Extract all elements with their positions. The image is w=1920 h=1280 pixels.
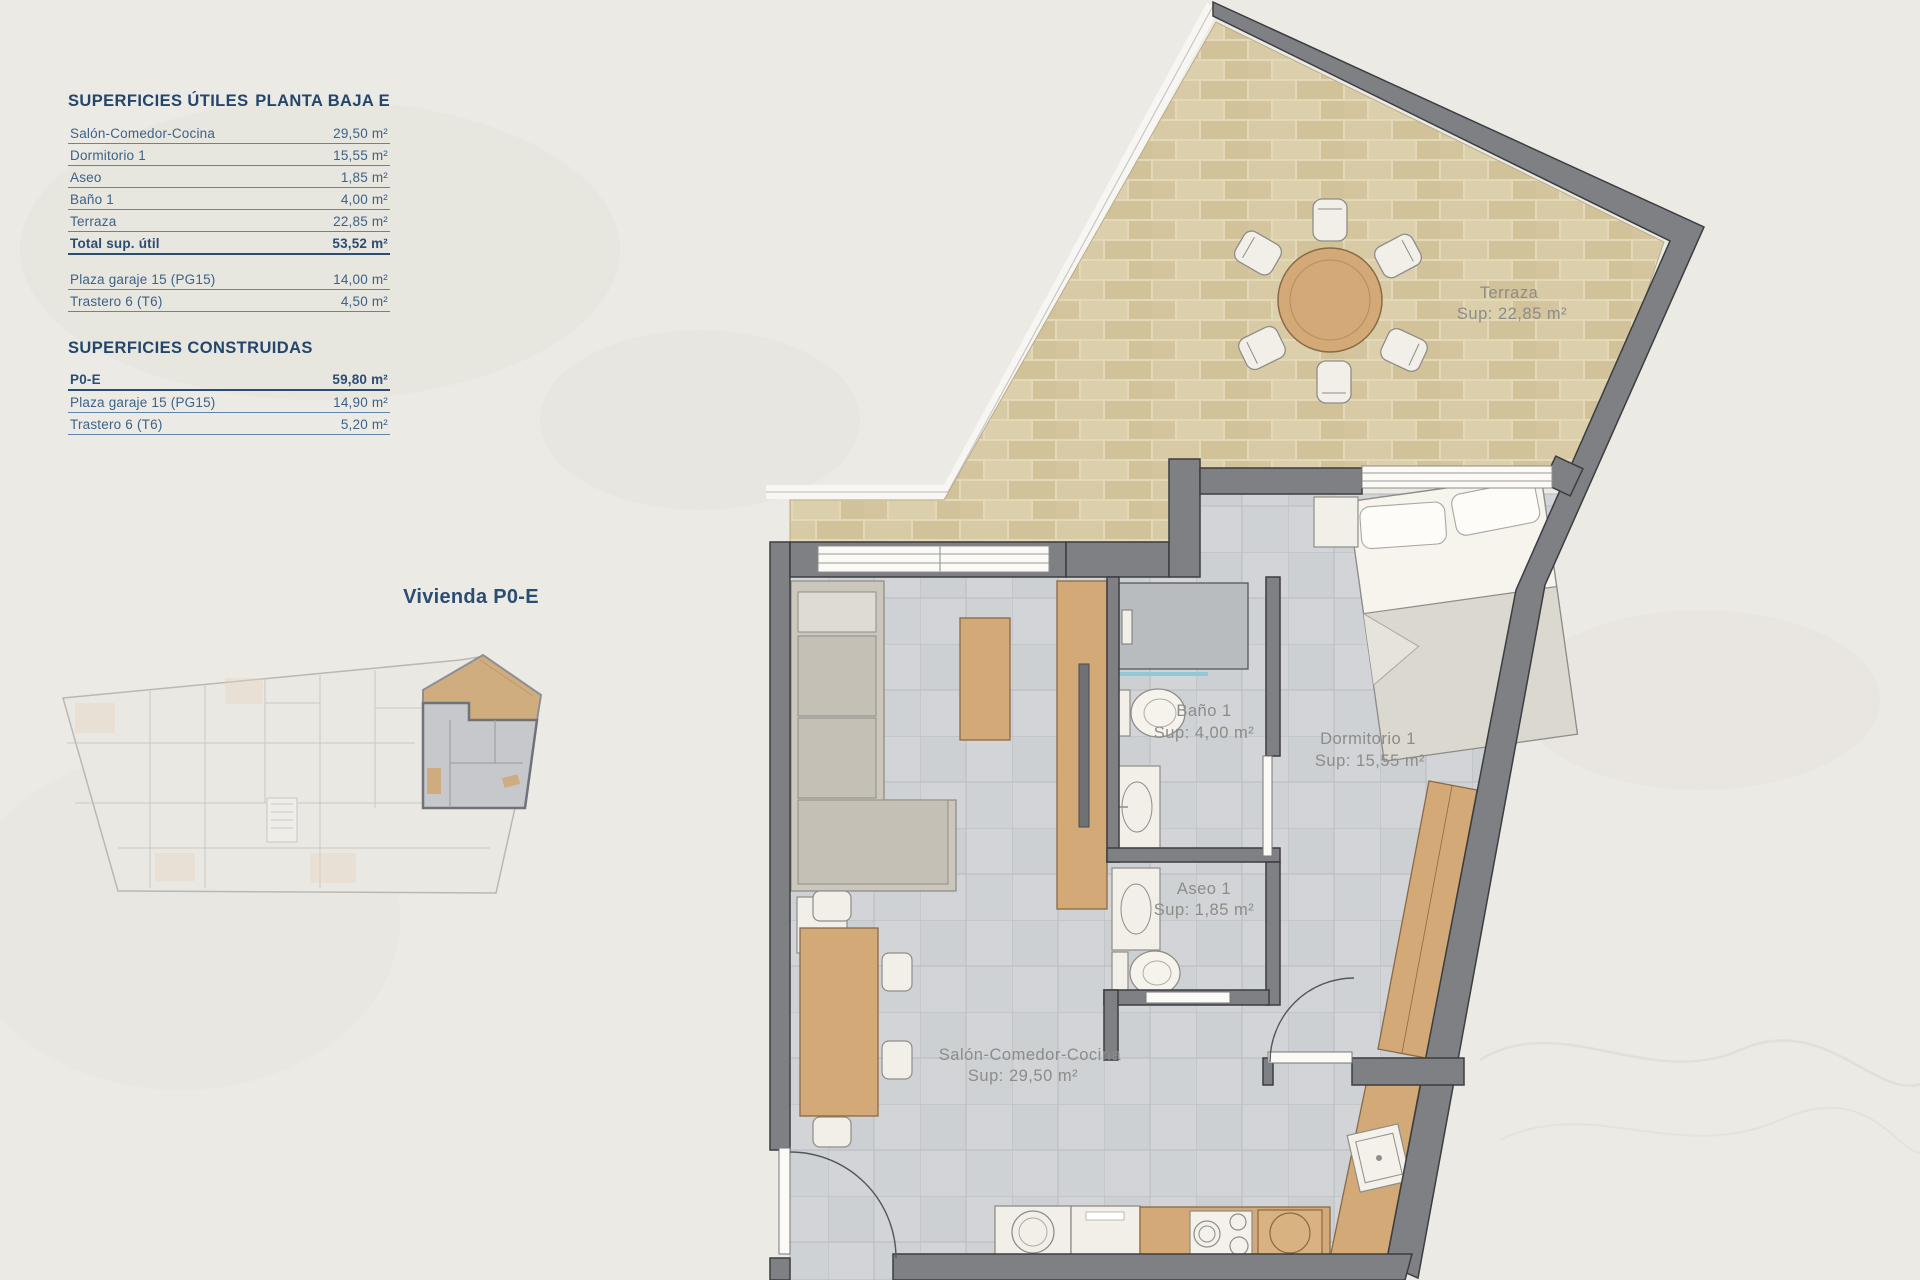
row-label: Salón-Comedor-Cocina <box>70 126 215 141</box>
dormitorio-area: Sup: 15,55 m² <box>1315 752 1425 770</box>
terrace-floor <box>790 22 1664 542</box>
bathroom-sink <box>1114 766 1160 848</box>
table-row: Trastero 6 (T6) 4,50 m² <box>68 290 390 312</box>
row-value: 53,52 m² <box>332 236 388 251</box>
aseo-sliding-door <box>1146 992 1230 1003</box>
terrace-round-table <box>1278 248 1382 352</box>
bottom-wall <box>893 1254 1412 1280</box>
unit-floor-plan: Terraza Sup: 22,85 m² Baño 1 Sup: 4,00 m… <box>766 2 1704 1280</box>
planta-title: PLANTA BAJA E <box>255 92 390 111</box>
areas-panel-header: SUPERFICIES ÚTILES PLANTA BAJA E <box>68 92 390 111</box>
table-row: Salón-Comedor-Cocina 29,50 m² <box>68 122 390 144</box>
row-label: Terraza <box>70 214 116 229</box>
building-overview-plan <box>63 655 541 893</box>
row-value: 14,00 m² <box>333 272 388 287</box>
row-value: 15,55 m² <box>333 148 388 163</box>
row-label: Plaza garaje 15 (PG15) <box>70 395 215 410</box>
row-label: Aseo <box>70 170 102 185</box>
aseo-label: Aseo 1 <box>1177 880 1231 898</box>
table-row: Plaza garaje 15 (PG15) 14,00 m² <box>68 268 390 290</box>
row-value: 29,50 m² <box>333 126 388 141</box>
table-row: Aseo 1,85 m² <box>68 166 390 188</box>
left-wall <box>770 542 790 1150</box>
row-label: Plaza garaje 15 (PG15) <box>70 272 215 287</box>
total-row: Total sup. útil 53,52 m² <box>68 232 390 255</box>
row-value: 5,20 m² <box>341 417 388 432</box>
row-label: P0-E <box>70 372 101 387</box>
table-row: Baño 1 4,00 m² <box>68 188 390 210</box>
table-row: P0-E 59,80 m² <box>68 368 390 391</box>
oven-unit <box>1258 1210 1322 1256</box>
bedroom-bottom-wall-right <box>1352 1058 1464 1085</box>
row-label: Trastero 6 (T6) <box>70 294 163 309</box>
center-wall-riser <box>1169 459 1200 577</box>
row-value: 4,50 m² <box>341 294 388 309</box>
row-value: 1,85 m² <box>341 170 388 185</box>
tv-screen <box>1079 664 1089 827</box>
living-window <box>818 546 1049 572</box>
row-label: Total sup. útil <box>70 236 160 251</box>
bathroom-left-wall <box>1107 577 1119 862</box>
aseo-area: Sup: 1,85 m² <box>1154 901 1254 919</box>
overview-caption: Vivienda P0-E <box>368 586 574 609</box>
bedroom-window <box>1362 466 1552 488</box>
row-value: 14,90 m² <box>333 395 388 410</box>
terraza-label: Terraza <box>1480 284 1539 302</box>
construidas-title: SUPERFICIES CONSTRUIDAS <box>68 339 390 358</box>
bed <box>1348 475 1578 762</box>
row-label: Trastero 6 (T6) <box>70 417 163 432</box>
row-label: Dormitorio 1 <box>70 148 146 163</box>
nightstand <box>1314 497 1358 547</box>
salon-area: Sup: 29,50 m² <box>968 1067 1078 1085</box>
bedroom-top-wall <box>1200 468 1362 494</box>
table-row: Trastero 6 (T6) 5,20 m² <box>68 413 390 435</box>
washing-machine <box>995 1206 1071 1258</box>
bathroom-sliding-door <box>1263 756 1272 856</box>
utiles-title: SUPERFICIES ÚTILES <box>68 92 248 111</box>
table-row: Dormitorio 1 15,55 m² <box>68 144 390 166</box>
bathroom-aseo-wall <box>1107 848 1280 862</box>
coffee-table <box>960 618 1010 740</box>
shower-tray <box>1114 583 1248 669</box>
areas-panel: SUPERFICIES ÚTILES PLANTA BAJA E Salón-C… <box>68 92 390 435</box>
row-value: 22,85 m² <box>333 214 388 229</box>
annex-table: Plaza garaje 15 (PG15) 14,00 m² Trastero… <box>68 268 390 312</box>
terraza-area: Sup: 22,85 m² <box>1457 305 1567 323</box>
banio-area: Sup: 4,00 m² <box>1154 724 1254 742</box>
construidas-table: SUPERFICIES CONSTRUIDAS P0-E 59,80 m² Pl… <box>68 339 390 435</box>
floorplan-page: Terraza Sup: 22,85 m² Baño 1 Sup: 4,00 m… <box>0 0 1920 1280</box>
salon-label: Salón-Comedor-Cocina <box>939 1046 1122 1064</box>
table-row: Plaza garaje 15 (PG15) 14,90 m² <box>68 391 390 413</box>
bathroom-right-wall <box>1266 577 1280 756</box>
row-value: 59,80 m² <box>332 372 388 387</box>
dining-table <box>800 928 878 1116</box>
banio-label: Baño 1 <box>1176 702 1231 720</box>
center-wall-block <box>1066 542 1169 577</box>
row-label: Baño 1 <box>70 192 114 207</box>
table-row: Terraza 22,85 m² <box>68 210 390 232</box>
left-wall-stub <box>770 1258 790 1280</box>
utiles-table: Salón-Comedor-Cocina 29,50 m² Dormitorio… <box>68 122 390 255</box>
dormitorio-label: Dormitorio 1 <box>1320 730 1416 748</box>
aseo-right-wall <box>1266 862 1280 1005</box>
row-value: 4,00 m² <box>341 192 388 207</box>
